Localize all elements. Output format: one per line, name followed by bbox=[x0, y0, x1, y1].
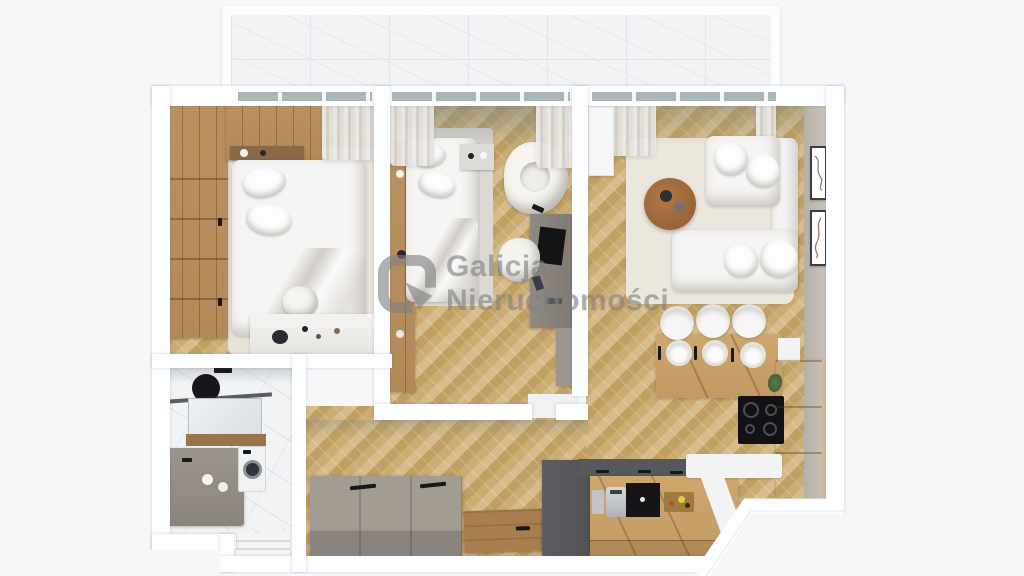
cutlery bbox=[694, 346, 697, 360]
mug bbox=[468, 153, 474, 159]
washer-panel bbox=[243, 450, 251, 454]
pillow bbox=[244, 202, 293, 239]
keyboard bbox=[546, 298, 562, 304]
wall-art-frame bbox=[810, 146, 827, 200]
pillow bbox=[239, 164, 288, 202]
coffee-machine-top bbox=[610, 490, 622, 494]
panel-knob bbox=[640, 497, 645, 502]
bar-stool bbox=[732, 304, 766, 338]
wardrobe-seams bbox=[310, 476, 462, 564]
vanity-tray bbox=[272, 330, 288, 344]
place-setting-plate bbox=[702, 340, 728, 366]
hob-ring bbox=[745, 424, 755, 434]
kitchen-tall-cabinets bbox=[776, 360, 828, 498]
cutlery bbox=[658, 346, 661, 360]
bar-stool bbox=[696, 304, 730, 338]
entry-door bbox=[463, 509, 544, 554]
sofa-pillow bbox=[721, 241, 761, 281]
cabinet-handle bbox=[670, 471, 683, 474]
washing-machine bbox=[238, 446, 266, 492]
sofa-seat bbox=[672, 230, 798, 292]
coffee-table bbox=[644, 178, 696, 230]
outside-area-southwest bbox=[148, 550, 220, 576]
sofa-chaise bbox=[706, 136, 780, 206]
curtain bbox=[322, 104, 376, 160]
towel-roll bbox=[202, 474, 213, 485]
wardrobe-drawer-lines bbox=[166, 178, 228, 338]
shelf-decor bbox=[396, 330, 404, 338]
faucet bbox=[182, 458, 192, 462]
shelf-decor bbox=[396, 170, 404, 178]
cutlery bbox=[731, 348, 734, 362]
window-bedroom1 bbox=[238, 92, 372, 101]
wardrobe-knob bbox=[218, 218, 222, 226]
bathroom-vanity-cabinet bbox=[162, 448, 244, 526]
table-decor bbox=[660, 190, 672, 202]
chamfered-corner-southeast bbox=[690, 490, 844, 576]
wall-bathroom-hall bbox=[292, 354, 306, 572]
curtain bbox=[536, 104, 576, 168]
perfume-bottle bbox=[302, 326, 308, 332]
hallway-wardrobe bbox=[310, 476, 462, 564]
wall-bedroom1-bathroom bbox=[152, 354, 392, 368]
place-setting-plate bbox=[666, 340, 692, 366]
door-handle bbox=[516, 526, 530, 530]
mirror-wood-frame bbox=[186, 434, 266, 446]
nightstand bbox=[460, 144, 494, 170]
food-item bbox=[678, 496, 685, 503]
espresso-accessories bbox=[592, 490, 604, 514]
kitchen-black-panel bbox=[626, 483, 660, 517]
hob-ring bbox=[743, 402, 759, 418]
towel-roll bbox=[218, 482, 228, 492]
sofa-pillow bbox=[743, 151, 782, 190]
towel-shelf bbox=[232, 534, 290, 556]
armchair-base bbox=[532, 204, 545, 213]
shelf-decor bbox=[397, 250, 406, 259]
wall-east bbox=[826, 86, 844, 514]
window-living bbox=[592, 92, 776, 101]
cosmetic-item bbox=[334, 328, 340, 334]
phone bbox=[532, 275, 544, 291]
sofa-pillow bbox=[756, 236, 802, 282]
food-item bbox=[669, 501, 674, 506]
table-decor bbox=[674, 202, 684, 212]
balcony bbox=[222, 6, 780, 98]
wall-art-frame bbox=[810, 210, 827, 266]
hallway-wall-shade bbox=[300, 420, 588, 438]
washer-door bbox=[243, 460, 262, 479]
cabinet-handle bbox=[638, 470, 651, 473]
bedroom1-wall-shelf bbox=[230, 146, 304, 160]
window-bedroom2 bbox=[392, 92, 570, 101]
shelf-decor bbox=[240, 149, 248, 157]
curtain bbox=[390, 104, 434, 166]
wall-hall-north-stub bbox=[556, 404, 588, 420]
wall-west bbox=[152, 86, 170, 550]
wardrobe-knob bbox=[218, 298, 222, 306]
cabinet-handle bbox=[596, 470, 609, 473]
living-white-cabinet bbox=[588, 106, 614, 176]
perfume-bottle bbox=[316, 334, 321, 339]
bar-stool bbox=[660, 306, 694, 340]
bedroom1-wardrobe-left bbox=[166, 98, 228, 338]
place-setting-plate bbox=[740, 342, 766, 368]
monitor bbox=[536, 227, 566, 266]
shelf-decor bbox=[260, 150, 266, 156]
kitchen-backsplash bbox=[778, 338, 800, 362]
floor-plan-render: Galicja Nieruchomości bbox=[0, 0, 1024, 576]
wall-bedroom2-living bbox=[572, 86, 588, 396]
hob-ring bbox=[763, 422, 777, 436]
coffee-machine bbox=[606, 487, 626, 517]
pillow bbox=[416, 168, 459, 201]
decor-item bbox=[480, 152, 487, 159]
duvet-fold bbox=[406, 218, 478, 302]
wall-hall-north bbox=[374, 404, 532, 420]
wall-bedroom1-bedroom2 bbox=[374, 86, 390, 420]
